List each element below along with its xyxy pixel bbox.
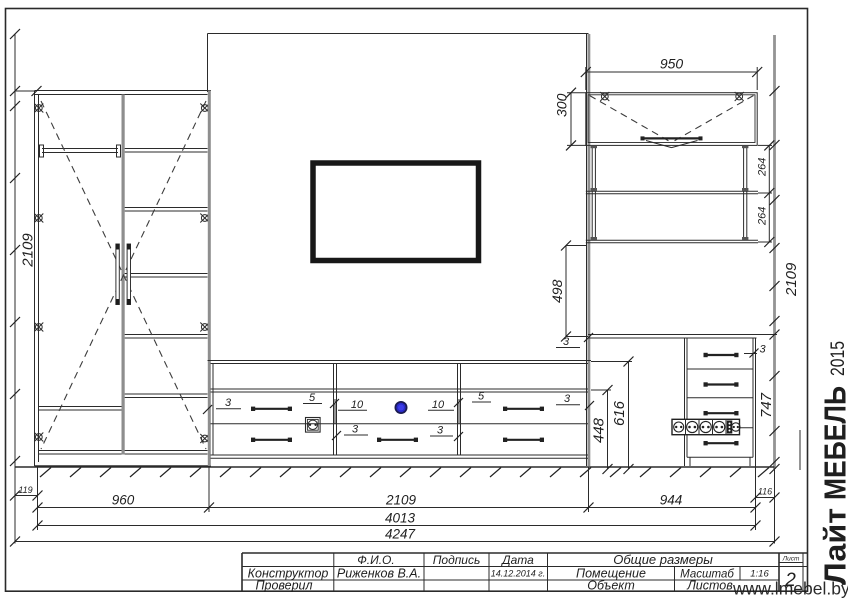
- svg-text:3: 3: [564, 393, 571, 405]
- svg-text:2109: 2109: [385, 493, 417, 508]
- svg-text:2015: 2015: [828, 341, 848, 376]
- svg-text:5: 5: [309, 392, 316, 404]
- svg-text:Подпись: Подпись: [433, 553, 481, 567]
- svg-text:10: 10: [432, 399, 445, 411]
- svg-text:944: 944: [660, 493, 683, 508]
- svg-text:3: 3: [437, 425, 444, 437]
- svg-text:Лайт: Лайт: [818, 508, 848, 585]
- svg-text:14.12.2014 г.: 14.12.2014 г.: [491, 569, 545, 579]
- svg-text:МЕБЕЛЬ: МЕБЕЛЬ: [818, 386, 848, 500]
- svg-text:3: 3: [760, 344, 767, 356]
- svg-text:Листов: Листов: [686, 579, 733, 593]
- svg-text:Объект: Объект: [587, 579, 635, 593]
- svg-text:2109: 2109: [20, 233, 37, 268]
- svg-text:498: 498: [549, 279, 565, 303]
- svg-text:116: 116: [758, 487, 772, 497]
- svg-text:747: 747: [758, 392, 775, 418]
- svg-text:950: 950: [660, 56, 684, 72]
- svg-text:264: 264: [757, 207, 769, 226]
- svg-text:4013: 4013: [385, 511, 416, 526]
- svg-text:448: 448: [591, 417, 608, 443]
- svg-text:Дата: Дата: [500, 553, 534, 567]
- svg-text:5: 5: [478, 391, 485, 403]
- svg-text:960: 960: [112, 493, 135, 508]
- svg-text:Общие размеры: Общие размеры: [613, 552, 713, 567]
- svg-text:119: 119: [18, 485, 32, 495]
- svg-text:Проверил: Проверил: [255, 579, 312, 593]
- svg-text:3: 3: [352, 424, 359, 436]
- svg-text:3: 3: [563, 336, 570, 348]
- svg-text:4247: 4247: [385, 527, 416, 542]
- svg-text:264: 264: [757, 158, 769, 177]
- svg-text:300: 300: [554, 93, 570, 117]
- svg-text:616: 616: [611, 400, 628, 426]
- svg-text:3: 3: [225, 397, 232, 409]
- svg-text:Лист: Лист: [782, 556, 800, 563]
- svg-text:10: 10: [351, 399, 364, 411]
- svg-text:Ф.И.О.: Ф.И.О.: [357, 553, 394, 567]
- svg-text:2109: 2109: [783, 262, 800, 297]
- svg-text:Риженков В.А.: Риженков В.А.: [337, 567, 421, 581]
